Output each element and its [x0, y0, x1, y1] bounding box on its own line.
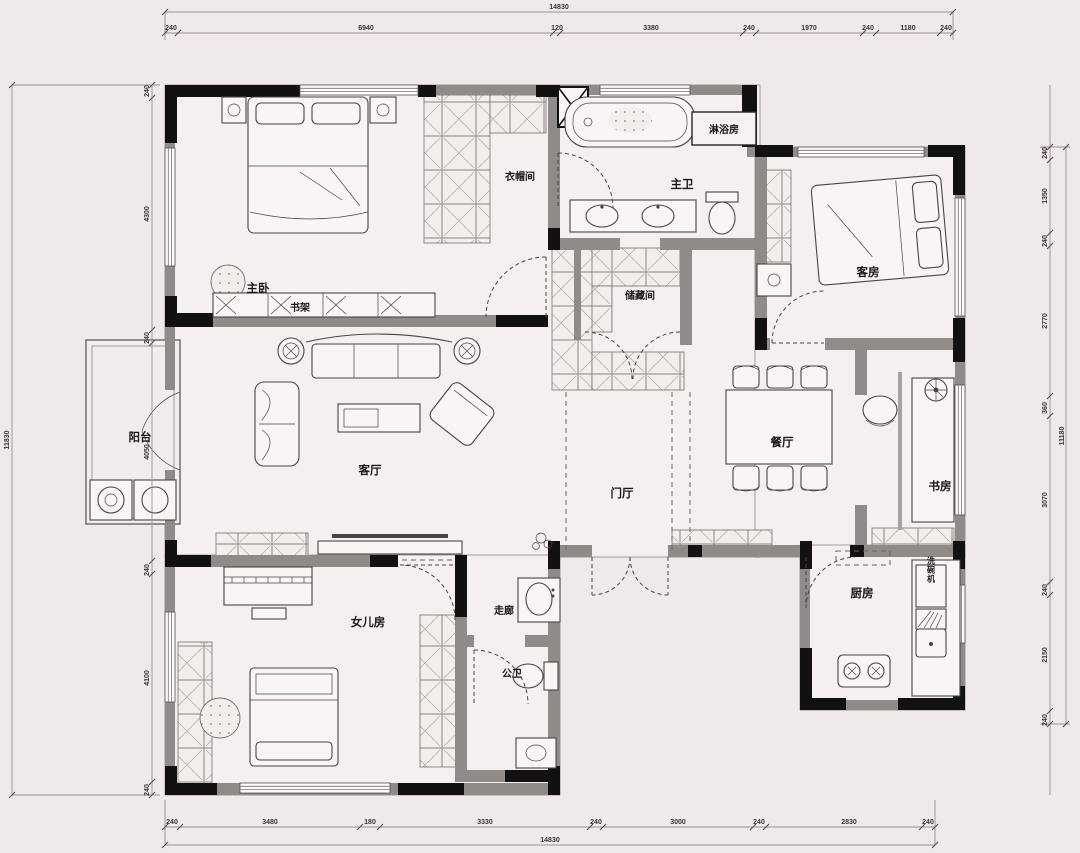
svg-text:3070: 3070 — [1042, 492, 1049, 508]
label-balcony: 阳台 — [129, 430, 152, 444]
ceiling-speaker-left — [278, 338, 304, 364]
sink-drainer — [916, 609, 946, 629]
svg-text:240: 240 — [144, 85, 151, 97]
washer — [90, 480, 132, 520]
dim-left-total: 11830 — [4, 430, 11, 449]
label-dining-room: 餐厅 — [770, 435, 794, 449]
svg-text:240: 240 — [940, 25, 952, 32]
label-living-room: 客厅 — [358, 463, 382, 477]
svg-text:1970: 1970 — [801, 25, 817, 32]
svg-text:120: 120 — [551, 25, 563, 32]
label-guest-bath: 公卫 — [502, 668, 522, 680]
daughter-wardrobe — [420, 615, 458, 767]
stove — [838, 655, 890, 687]
dryer — [134, 480, 176, 520]
guest-cabinet — [757, 264, 791, 296]
svg-text:3330: 3330 — [477, 819, 493, 826]
coffee-table — [338, 404, 420, 432]
window-bath-top — [600, 85, 690, 95]
svg-text:240: 240 — [165, 25, 177, 32]
window-guest-right — [955, 198, 965, 316]
window-master-top — [300, 85, 418, 95]
glass-partition — [898, 372, 902, 530]
label-cloakroom: 衣帽间 — [505, 170, 535, 183]
svg-text:180: 180 — [364, 819, 376, 826]
window-master-left — [165, 148, 175, 266]
daughter-rug — [200, 698, 240, 738]
label-corridor: 走廊 — [493, 604, 514, 617]
svg-text:240: 240 — [144, 332, 151, 344]
svg-text:1180: 1180 — [900, 25, 915, 32]
svg-text:240: 240 — [590, 819, 602, 826]
entry-double-door — [592, 557, 668, 595]
ceiling-fan — [925, 379, 947, 401]
tv-cabinet — [318, 534, 462, 554]
window-guest-top — [798, 147, 924, 157]
ceiling-speaker-right — [454, 338, 480, 364]
dining-table — [726, 390, 832, 464]
svg-text:2770: 2770 — [1042, 313, 1049, 329]
svg-text:4050: 4050 — [144, 444, 151, 460]
label-master-bath: 主卫 — [671, 177, 694, 191]
dim-top-total: 14830 — [549, 4, 569, 11]
label-guest-room: 客房 — [856, 265, 880, 279]
svg-text:240: 240 — [144, 784, 151, 796]
svg-text:240: 240 — [166, 819, 178, 826]
svg-text:4100: 4100 — [144, 670, 151, 686]
svg-text:240: 240 — [1042, 584, 1049, 596]
label-master-bedroom: 主卧 — [247, 281, 270, 295]
svg-text:240: 240 — [753, 819, 765, 826]
label-dishwasher: 洗碗机 — [927, 556, 936, 584]
bathtub — [565, 97, 695, 147]
nightstand-left — [222, 97, 246, 123]
window-daughter-left — [165, 612, 175, 702]
master-closet-units — [424, 95, 490, 243]
daughter-bed — [250, 668, 338, 766]
label-kitchen: 厨房 — [851, 586, 874, 600]
dim-right-total: 11180 — [1059, 427, 1066, 446]
svg-text:240: 240 — [922, 819, 934, 826]
guest-bed — [811, 175, 949, 286]
floor-plan: 主卧 书架 衣帽间 主卫 淋浴房 客房 储藏间 客厅 阳台 餐厅 书房 门厅 走… — [0, 0, 1080, 853]
label-daughter-room: 女儿房 — [351, 615, 386, 629]
svg-text:1350: 1350 — [1042, 188, 1049, 204]
corridor-basin — [518, 578, 560, 622]
svg-text:3000: 3000 — [670, 819, 686, 826]
cloakroom-cabinet — [490, 95, 546, 133]
svg-text:240: 240 — [1042, 147, 1049, 159]
label-study: 书房 — [929, 479, 952, 493]
nightstand-right — [370, 97, 396, 123]
svg-text:240: 240 — [862, 25, 874, 32]
study-chair — [863, 396, 897, 426]
kitchen-sink — [916, 629, 946, 657]
svg-text:240: 240 — [144, 564, 151, 576]
label-shower-room: 淋浴房 — [709, 123, 739, 136]
svg-text:240: 240 — [1042, 714, 1049, 726]
svg-text:3380: 3380 — [643, 25, 659, 32]
label-bookshelf: 书架 — [290, 301, 310, 314]
dim-bottom-total: 14830 — [540, 837, 560, 844]
svg-text:6940: 6940 — [358, 25, 374, 32]
master-bed — [248, 97, 368, 233]
svg-text:360: 360 — [1042, 402, 1049, 414]
bath-shelf — [516, 738, 556, 768]
hall-tiles-vertical — [552, 242, 592, 390]
svg-text:240: 240 — [1042, 235, 1049, 247]
svg-text:4300: 4300 — [144, 206, 151, 222]
svg-text:2830: 2830 — [841, 819, 857, 826]
tv-wall-cabinet — [216, 533, 308, 556]
svg-text:240: 240 — [743, 25, 755, 32]
label-foyer: 门厅 — [611, 486, 634, 500]
window-study-right — [955, 385, 965, 515]
svg-text:2150: 2150 — [1042, 647, 1049, 663]
window-daughter-bottom — [240, 783, 390, 793]
svg-text:3480: 3480 — [262, 819, 278, 826]
bookshelf-unit — [213, 293, 435, 317]
bath-vanity — [570, 200, 696, 232]
label-storage: 储藏间 — [624, 289, 655, 302]
